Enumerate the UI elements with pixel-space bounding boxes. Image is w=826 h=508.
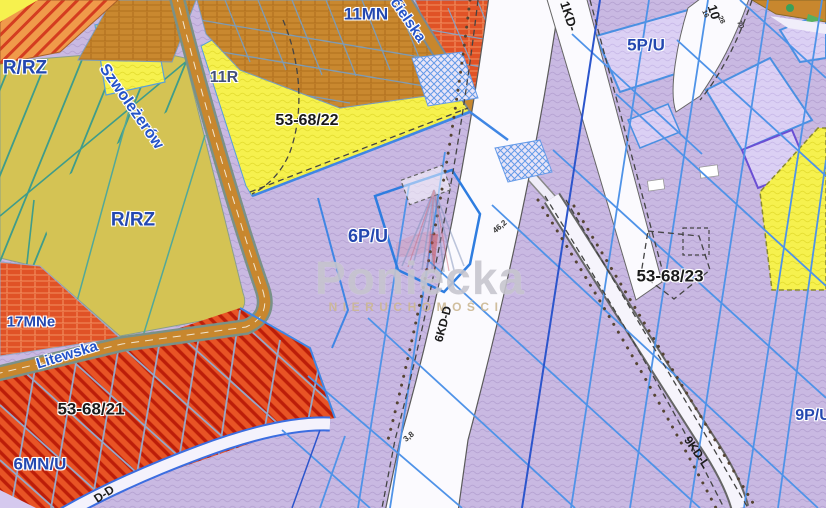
zone-label-11mn: 11MN (344, 6, 388, 23)
watermark-name: Poniecka (315, 255, 525, 301)
parcel-number-53-68-23: 53-68/23 (636, 268, 703, 285)
zone-label-rrz-mid: R/RZ (111, 211, 155, 230)
zone-label-6pu: 6P/U (348, 227, 388, 245)
zone-label-17mne: 17MNe (7, 315, 55, 330)
zone-label-rrz-top: R/RZ (3, 59, 47, 78)
zone-label-6mnu: 6MN/U (14, 456, 67, 473)
zoning-map-canvas[interactable]: Poniecka NIERUCHOMOŚCI R/RZ R/RZ 11MN 11… (0, 0, 826, 508)
parcel-number-53-68-22: 53-68/22 (275, 113, 338, 129)
zone-label-5pu: 5P/U (627, 37, 665, 54)
parcel-number-53-68-21: 53-68/21 (57, 401, 124, 418)
watermark-subtitle: NIERUCHOMOŚCI (329, 301, 504, 313)
zone-label-9pu: 9P/U (795, 408, 826, 424)
zone-label-11r: 11R (210, 70, 238, 86)
